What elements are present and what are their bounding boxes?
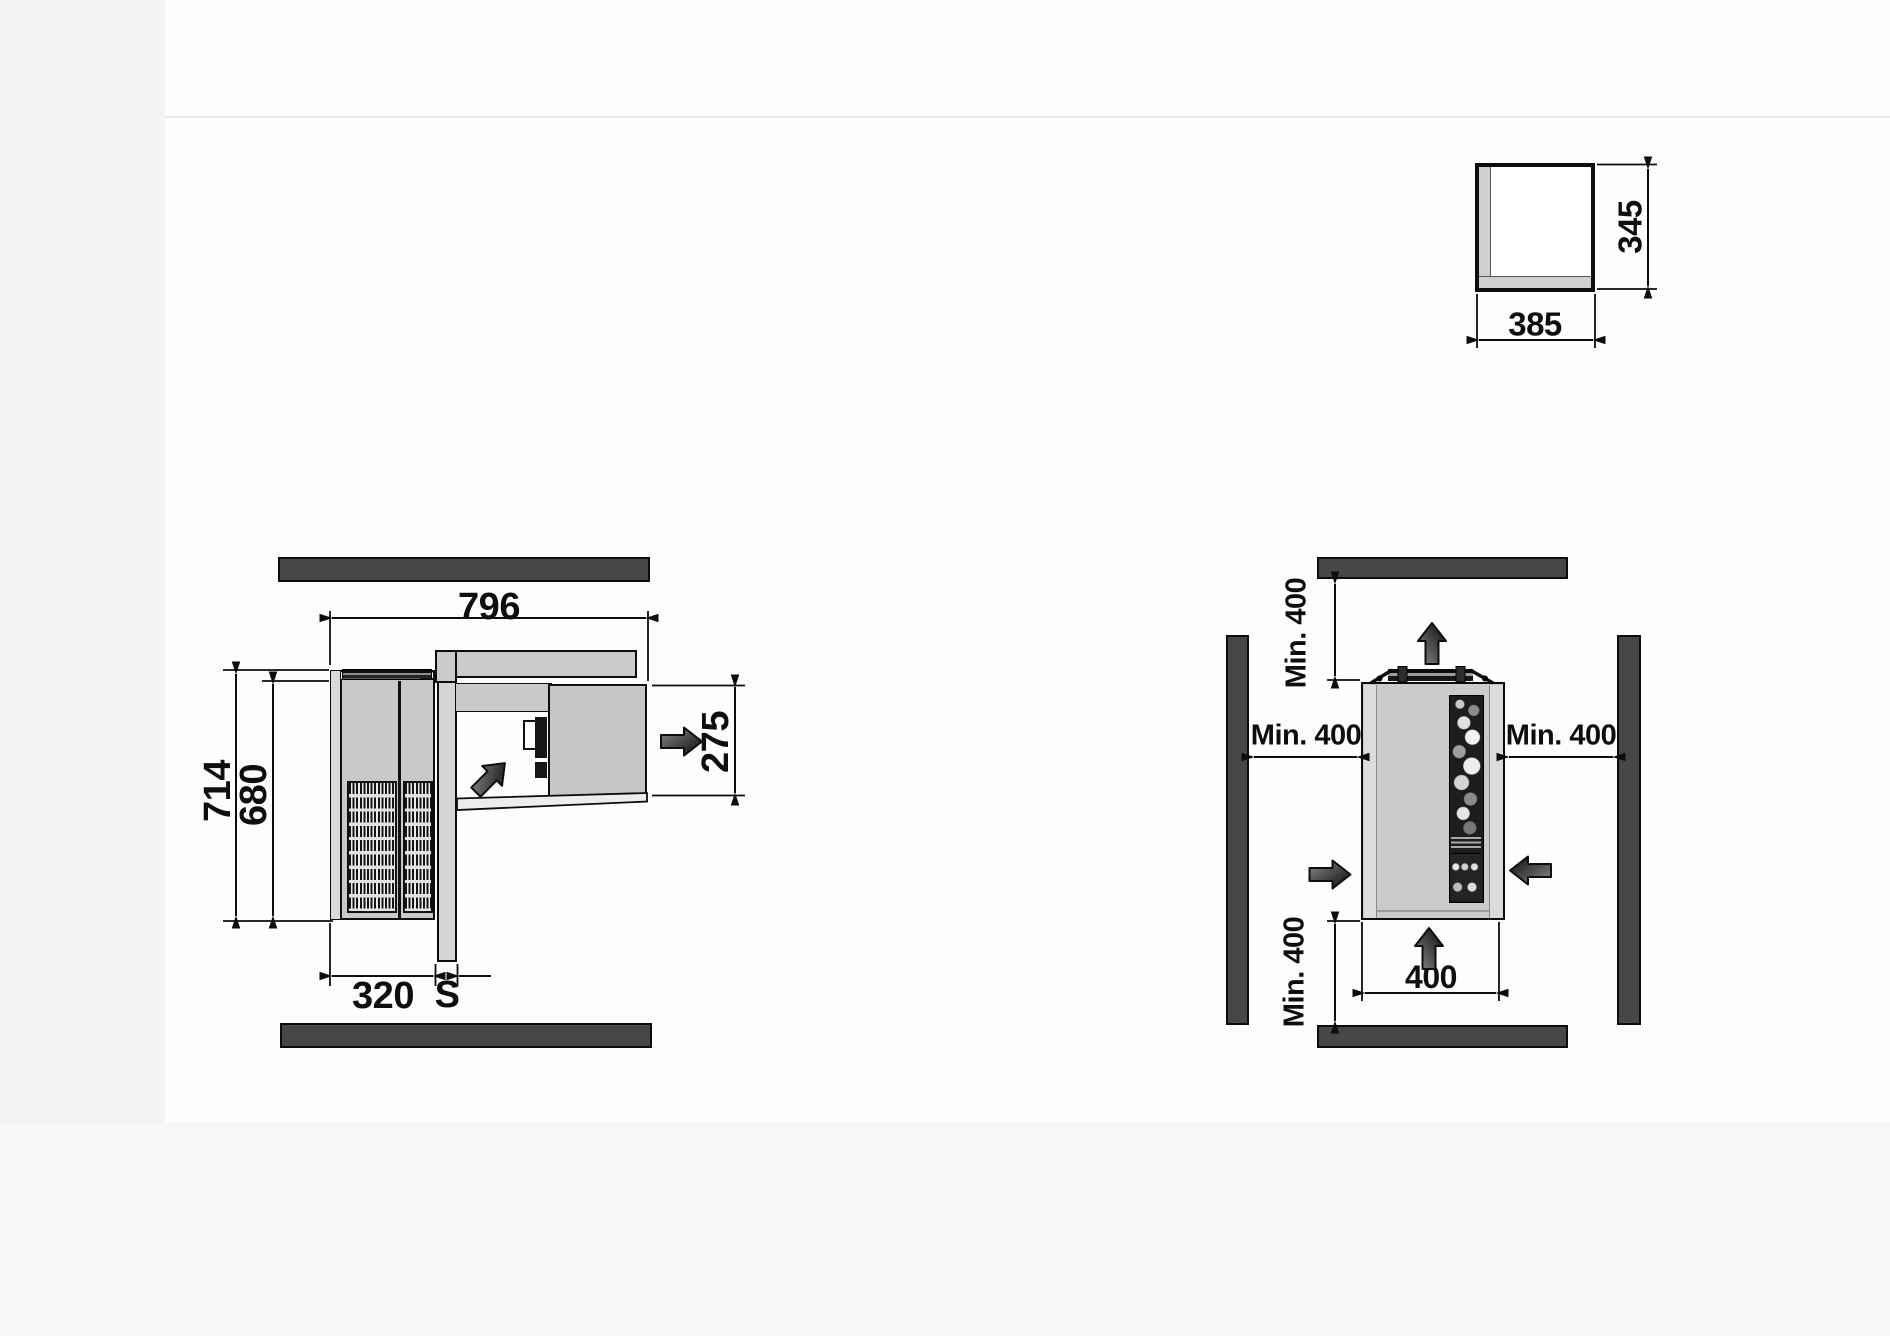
airflow-diagonal-arrow-icon <box>466 753 515 802</box>
front-view-extension-lines <box>1327 680 1499 1001</box>
airflow-up-arrow-bottom-icon <box>1415 928 1443 969</box>
cutout-extension-lines <box>1477 165 1657 349</box>
installation-diagram-canvas: 796 714 680 320 S 275 Min. 400 Min. 400 … <box>0 0 1890 1336</box>
airflow-left-arrow-right-side-icon <box>1510 857 1551 885</box>
airflow-up-arrow-top-icon <box>1418 623 1446 664</box>
airflow-right-arrow-left-side-icon <box>1310 861 1351 889</box>
dimension-overlay <box>0 0 1890 1336</box>
indoor-bottom-panel <box>457 793 647 810</box>
cutout-dimension-lines <box>1479 169 1648 340</box>
airflow-right-arrow-icon <box>661 728 702 756</box>
unit-mounting-bracket <box>1371 667 1493 684</box>
